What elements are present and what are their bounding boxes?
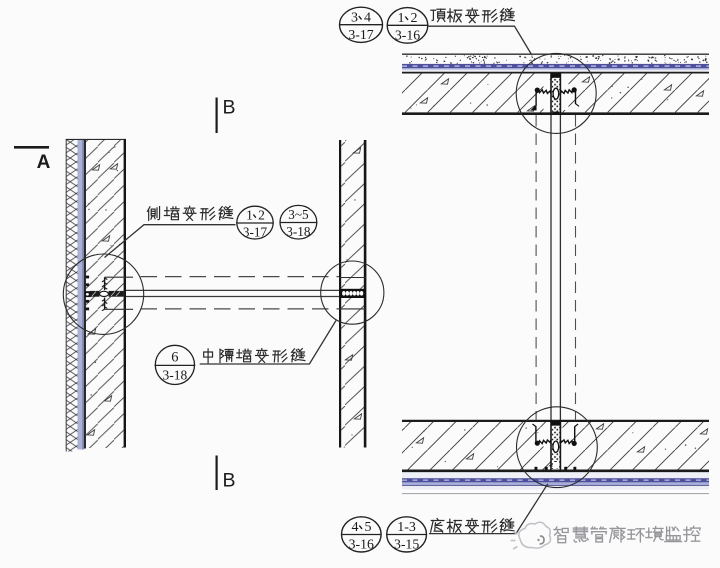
svg-text:3-18: 3-18 — [163, 368, 188, 383]
svg-text:A: A — [37, 152, 51, 173]
svg-text:B: B — [223, 97, 236, 119]
svg-text:3-15: 3-15 — [394, 537, 419, 552]
svg-text:1: 1 — [246, 208, 253, 223]
svg-text:3~5: 3~5 — [288, 207, 309, 222]
svg-text:4: 4 — [364, 11, 371, 26]
svg-text:1: 1 — [398, 11, 405, 26]
svg-text:5: 5 — [365, 520, 372, 535]
svg-text:2: 2 — [258, 208, 265, 223]
svg-text:6: 6 — [171, 350, 178, 366]
svg-text:B: B — [223, 470, 236, 492]
svg-text:2: 2 — [411, 11, 418, 26]
svg-text:3-17: 3-17 — [243, 225, 268, 240]
svg-text:4: 4 — [352, 520, 359, 535]
svg-text:3-18: 3-18 — [286, 224, 311, 239]
svg-text:1-3: 1-3 — [397, 520, 416, 535]
svg-text:3-16: 3-16 — [349, 537, 374, 552]
svg-text:3-16: 3-16 — [395, 28, 420, 43]
svg-text:3-17: 3-17 — [348, 27, 373, 42]
svg-text:3: 3 — [351, 11, 358, 26]
